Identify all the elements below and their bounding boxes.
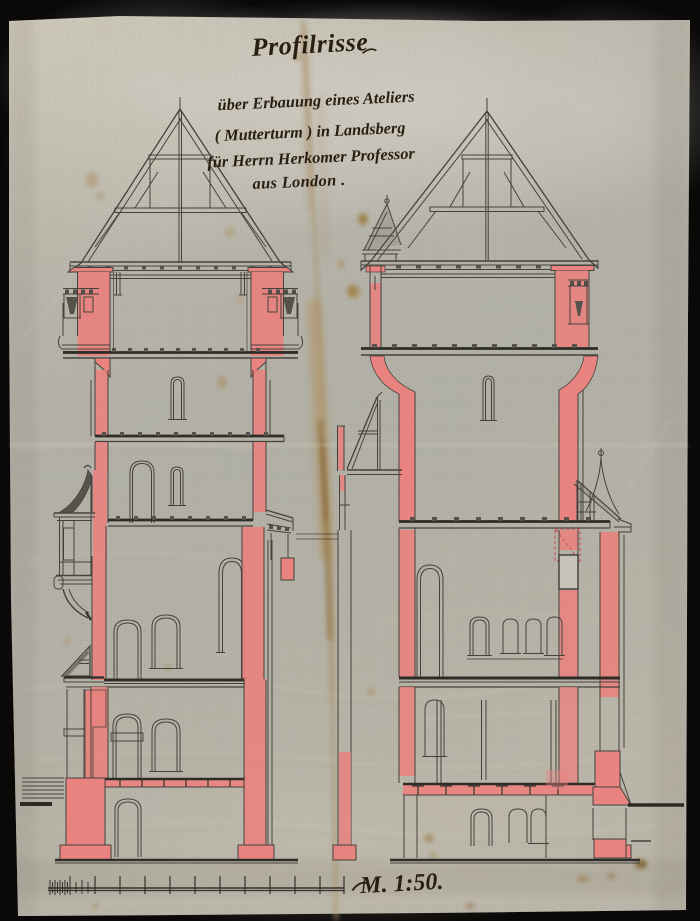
svg-text:aus London .: aus London .: [252, 170, 346, 193]
svg-text:Profilrisse: Profilrisse: [250, 27, 369, 62]
svg-text:M. 1:50.: M. 1:50.: [358, 869, 444, 899]
